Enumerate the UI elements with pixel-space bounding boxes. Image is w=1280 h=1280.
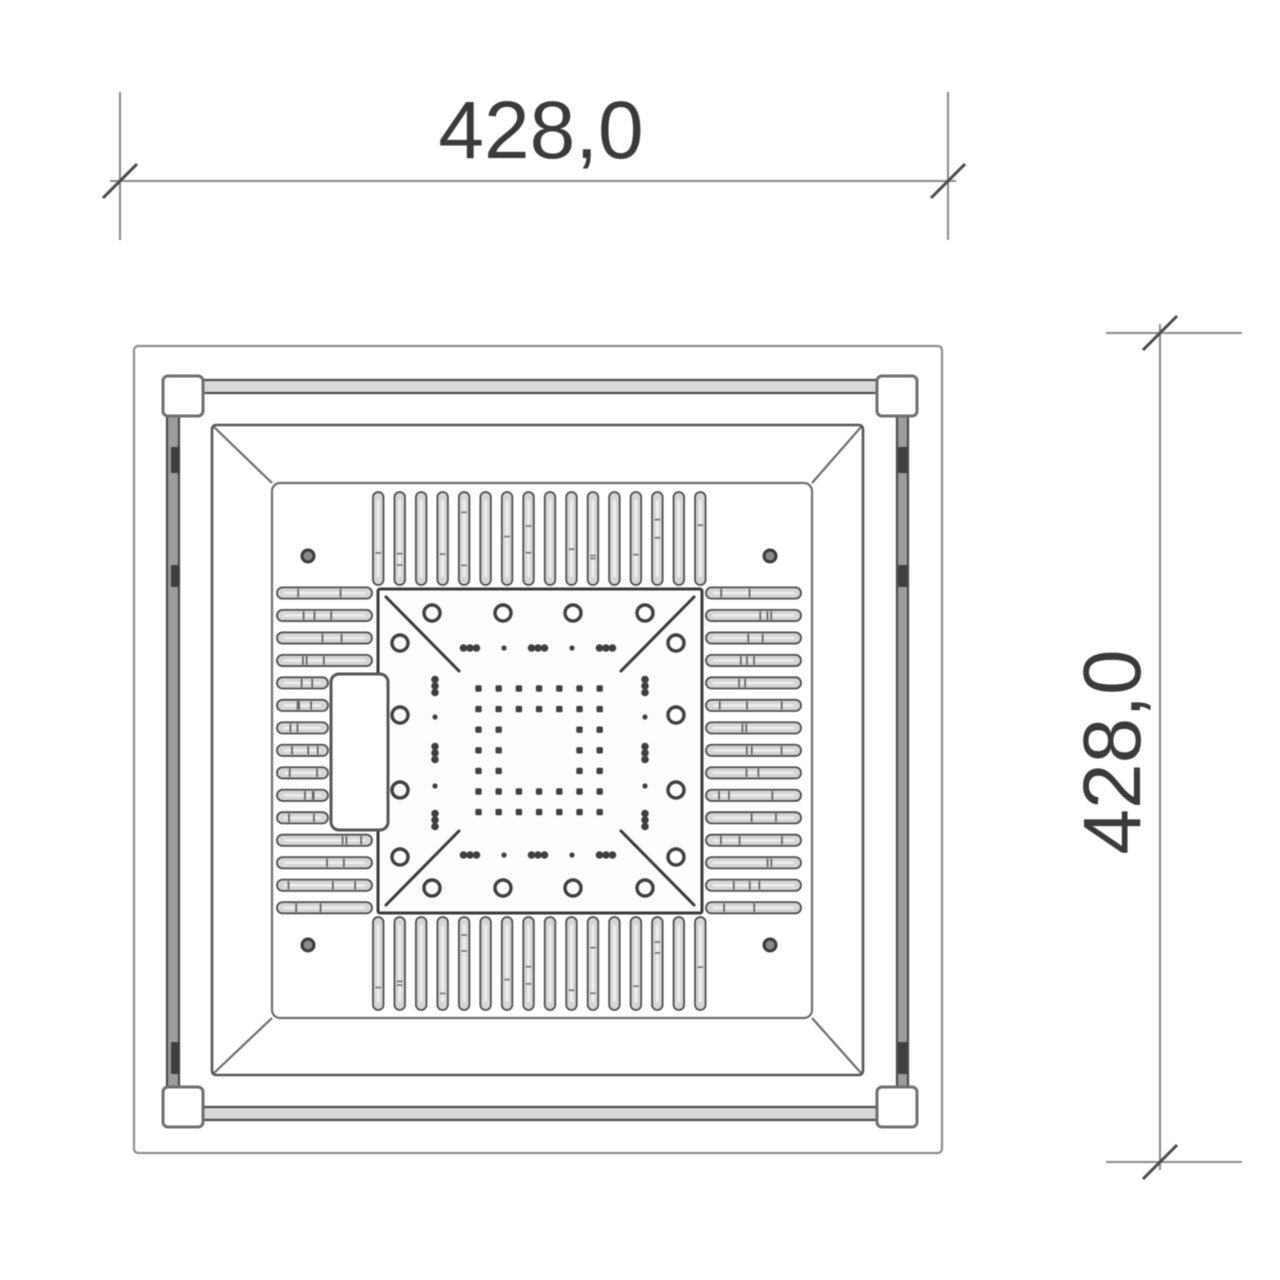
led-pad [475, 788, 481, 794]
screw-ring [637, 880, 653, 896]
hole-cluster [541, 644, 549, 652]
led-pad [597, 788, 603, 794]
led-pad [475, 706, 481, 712]
hole-cluster [641, 810, 649, 818]
rail-clip [171, 447, 180, 473]
hole-cluster [641, 676, 649, 684]
connector-block [331, 674, 388, 830]
led-pad [576, 747, 582, 753]
hole-cluster [431, 823, 439, 831]
led-pad [536, 809, 542, 815]
led-pad [597, 685, 603, 691]
drawing-canvas: 428,0 428,0 [0, 0, 1280, 1280]
hole-cluster [641, 689, 649, 697]
corner-bracket [163, 376, 203, 416]
corner-bracket [163, 1087, 203, 1127]
led-pad [597, 706, 603, 712]
hole-dot [432, 783, 437, 788]
fixture-plan [134, 346, 942, 1153]
hole-cluster [466, 644, 474, 652]
led-pad [475, 768, 481, 774]
hole-dot [501, 645, 506, 650]
hole-cluster [473, 644, 481, 652]
screw-ring [668, 782, 684, 798]
led-pad [475, 747, 481, 753]
led-pad [556, 685, 562, 691]
rail-clip [898, 1042, 907, 1074]
led-pad [516, 685, 522, 691]
led-pad [576, 685, 582, 691]
hole-cluster [431, 816, 439, 824]
led-pad [475, 809, 481, 815]
hole-cluster [460, 851, 468, 859]
rail-left [167, 416, 179, 1087]
led-pad [475, 685, 481, 691]
led-pad [516, 788, 522, 794]
led-pad [475, 727, 481, 733]
hole-cluster [541, 851, 549, 859]
rail-clip [171, 1042, 180, 1074]
led-pad [556, 788, 562, 794]
corner-bracket [877, 1087, 917, 1127]
led-pad [496, 768, 502, 774]
rail-top [203, 380, 877, 393]
screw-ring [392, 782, 408, 798]
led-pad [496, 727, 502, 733]
led-pad [556, 809, 562, 815]
screw-ring [668, 635, 684, 651]
hole-cluster [431, 743, 439, 751]
led-pad [597, 768, 603, 774]
screw-ring [424, 605, 440, 621]
rail-clip [898, 565, 907, 587]
led-pad [576, 809, 582, 815]
led-pad [597, 727, 603, 733]
led-pad [536, 706, 542, 712]
hole-dot [432, 714, 437, 719]
rail-right [897, 416, 908, 1087]
hole-cluster [641, 756, 649, 764]
rail-bottom [203, 1107, 877, 1120]
led-pad [496, 685, 502, 691]
hole-cluster [431, 682, 439, 690]
led-pad [496, 747, 502, 753]
hole-cluster [473, 851, 481, 859]
hole-dot [569, 852, 574, 857]
dimension-right: 428,0 [1067, 316, 1242, 1179]
screw-ring [424, 880, 440, 896]
hole-cluster [534, 851, 542, 859]
screw-ring [495, 880, 511, 896]
panel-hole [302, 939, 314, 951]
hole-cluster [431, 810, 439, 818]
hole-cluster [609, 644, 617, 652]
led-pad [536, 788, 542, 794]
hole-cluster [596, 644, 604, 652]
led-pad [576, 788, 582, 794]
hole-dot [642, 714, 647, 719]
screw-ring [565, 880, 581, 896]
hole-dot [569, 645, 574, 650]
led-pad [496, 809, 502, 815]
hole-cluster [460, 644, 468, 652]
led-pad [597, 809, 603, 815]
screw-ring [668, 707, 684, 723]
rail-clip [171, 565, 180, 587]
led-pad [516, 706, 522, 712]
panel-hole [764, 550, 776, 562]
hole-cluster [641, 743, 649, 751]
hole-cluster [641, 823, 649, 831]
led-pad [597, 747, 603, 753]
hole-cluster [534, 644, 542, 652]
hole-cluster [641, 749, 649, 757]
screw-ring [392, 849, 408, 865]
panel-hole [764, 939, 776, 951]
led-pad [536, 685, 542, 691]
hole-cluster [431, 676, 439, 684]
led-pad [576, 706, 582, 712]
hole-cluster [528, 644, 536, 652]
screw-ring [637, 605, 653, 621]
hole-cluster [641, 816, 649, 824]
panel-hole [302, 550, 314, 562]
dimension-right-label: 428,0 [1067, 649, 1158, 854]
hole-cluster [431, 756, 439, 764]
hole-cluster [641, 682, 649, 690]
screw-ring [565, 605, 581, 621]
hole-dot [501, 852, 506, 857]
rail-clip [898, 447, 907, 473]
led-pad [496, 788, 502, 794]
hole-cluster [528, 851, 536, 859]
corner-bracket [877, 376, 917, 416]
hole-cluster [431, 749, 439, 757]
screw-ring [668, 849, 684, 865]
dimension-top: 428,0 [103, 85, 965, 240]
screw-ring [392, 635, 408, 651]
led-pad [516, 809, 522, 815]
hole-cluster [466, 851, 474, 859]
led-pad [556, 706, 562, 712]
hole-cluster [596, 851, 604, 859]
dimension-top-label: 428,0 [438, 85, 643, 176]
hole-cluster [431, 689, 439, 697]
hole-cluster [602, 851, 610, 859]
hole-cluster [609, 851, 617, 859]
screw-ring [392, 707, 408, 723]
hole-dot [642, 783, 647, 788]
technical-drawing-page: 428,0 428,0 [0, 0, 1280, 1280]
screw-ring [495, 605, 511, 621]
hole-cluster [602, 644, 610, 652]
led-pad [576, 768, 582, 774]
led-pad [496, 706, 502, 712]
led-pad [576, 727, 582, 733]
